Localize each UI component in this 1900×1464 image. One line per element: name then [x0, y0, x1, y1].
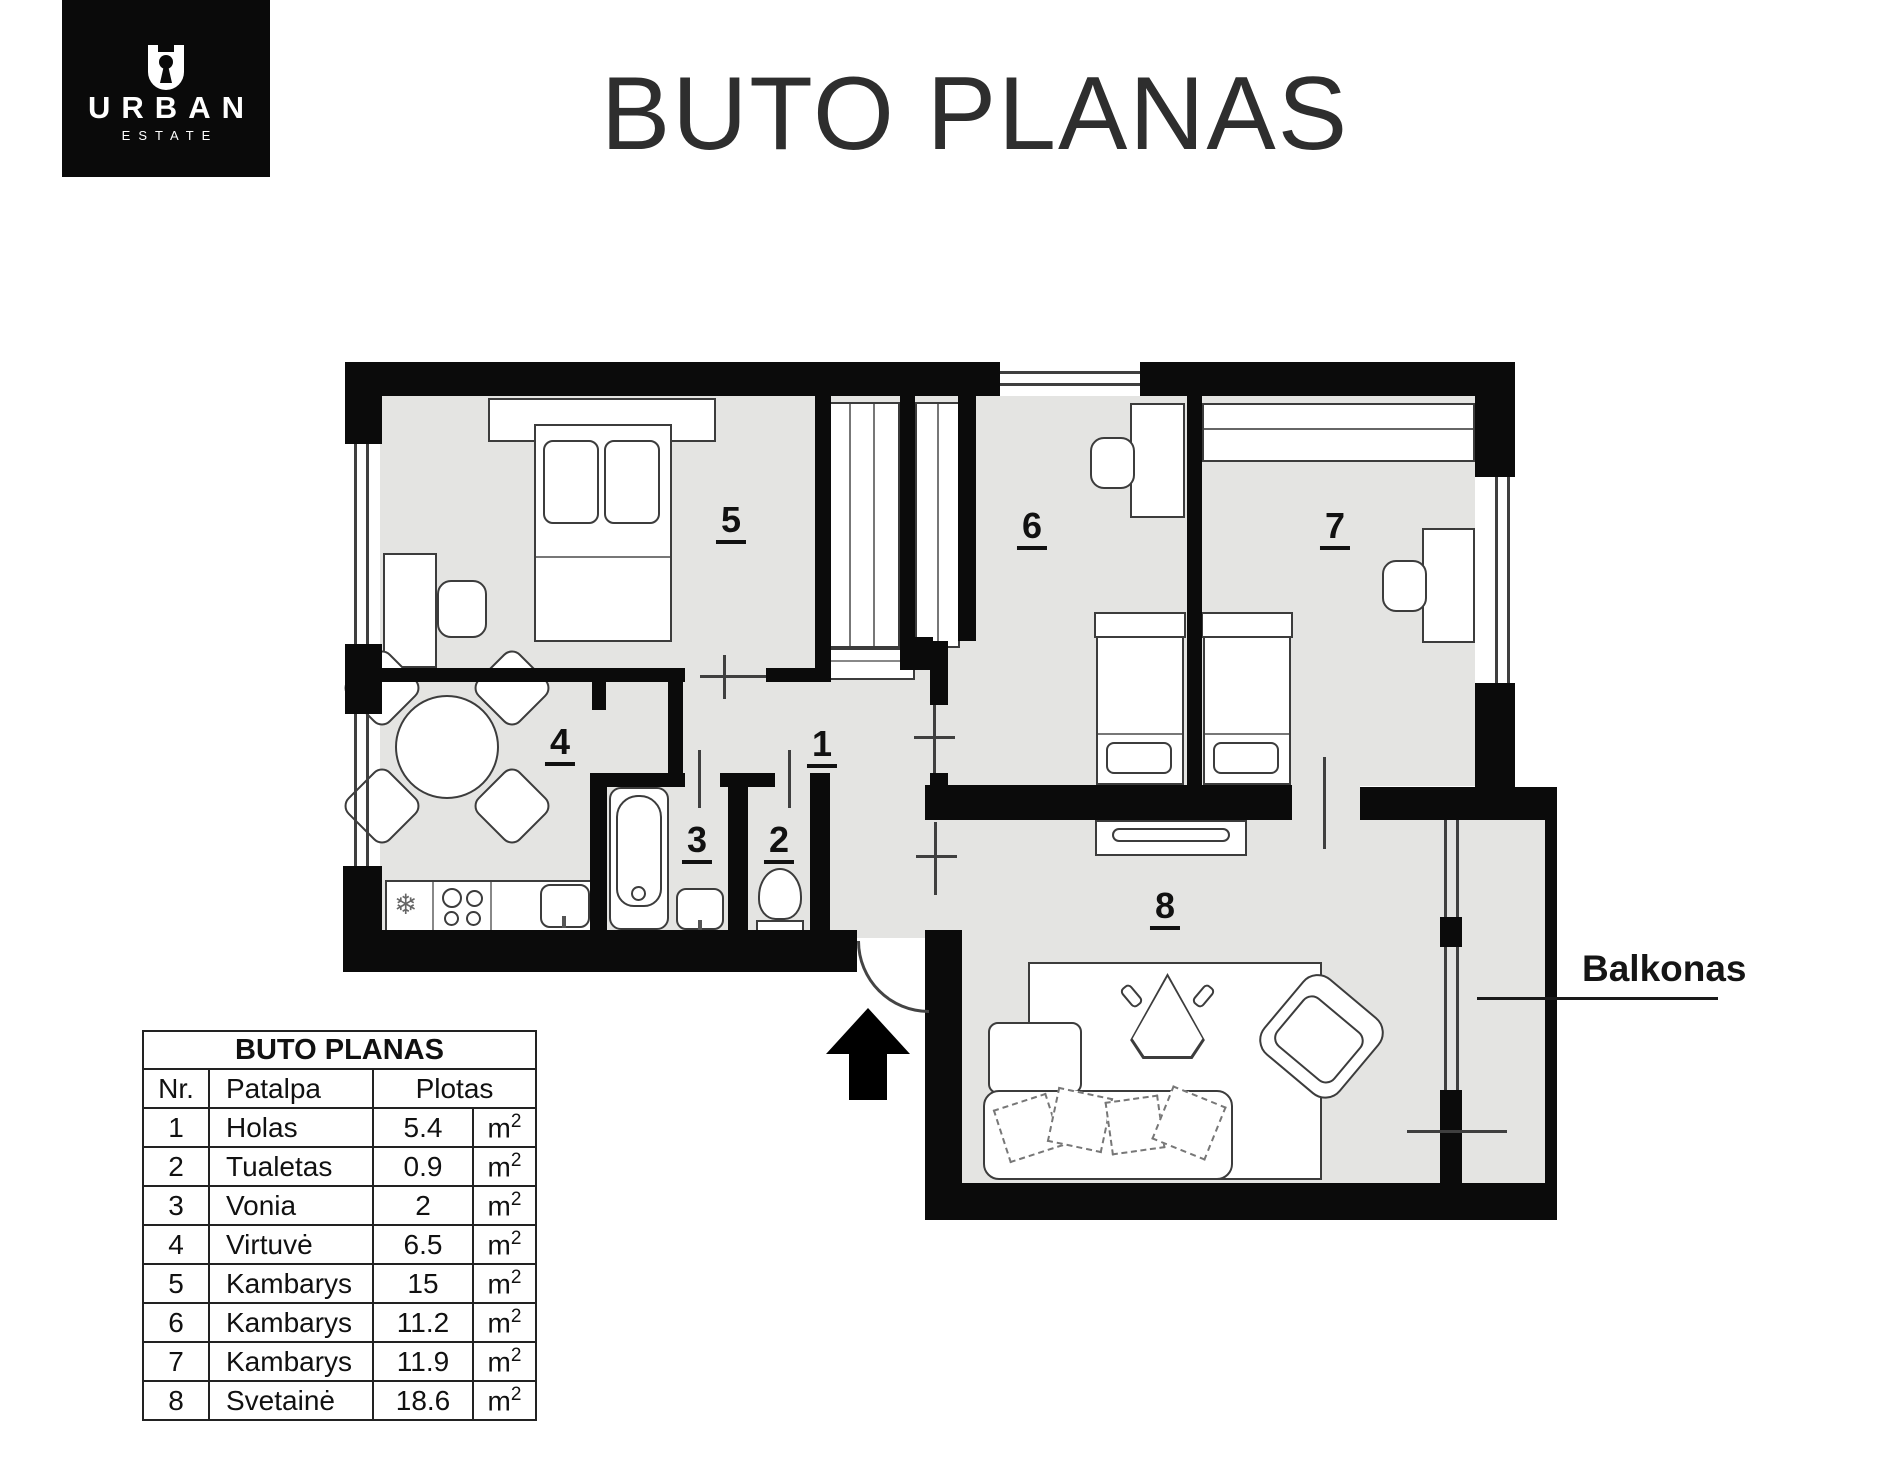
sofa-back-icon	[988, 1022, 1082, 1094]
cell-unit: m2	[473, 1186, 536, 1225]
unit-base: m	[488, 1112, 511, 1143]
unit-base: m	[488, 1346, 511, 1377]
office-chair-icon	[437, 580, 487, 638]
cell-name: Tualetas	[209, 1147, 373, 1186]
unit-sup: 2	[511, 1228, 522, 1249]
cell-nr: 3	[143, 1186, 209, 1225]
unit-base: m	[488, 1268, 511, 1299]
stove-burner-icon	[466, 890, 483, 907]
room-label-7: 7	[1320, 508, 1350, 550]
unit-base: m	[488, 1229, 511, 1260]
wall-segment	[925, 1183, 1557, 1220]
entrance-door-arc	[857, 941, 929, 1013]
cell-unit: m2	[473, 1108, 536, 1147]
cell-nr: 2	[143, 1147, 209, 1186]
window-line	[1507, 477, 1510, 683]
stove-burner-icon	[466, 911, 481, 926]
cell-unit: m2	[473, 1381, 536, 1420]
cell-value: 15	[373, 1264, 473, 1303]
counter-divider	[490, 882, 492, 930]
unit-sup: 2	[511, 1345, 522, 1366]
cell-name: Svetainė	[209, 1381, 373, 1420]
wall-segment	[766, 668, 815, 682]
wall-segment	[380, 668, 685, 682]
round-table-icon	[395, 695, 499, 799]
balcony-label: Balkonas	[1582, 948, 1747, 990]
table-row: 4 Virtuvė 6.5 m2	[143, 1225, 536, 1264]
stove-burner-icon	[444, 911, 459, 926]
keyhole-icon	[136, 42, 196, 92]
door-tick	[788, 750, 791, 808]
faucet-line	[562, 916, 566, 928]
cell-value: 5.4	[373, 1108, 473, 1147]
table-row: 3 Vonia 2 m2	[143, 1186, 536, 1225]
door-tick	[700, 675, 766, 678]
balcony-window-line	[1444, 820, 1447, 1090]
balcony-door-panel	[1440, 1090, 1462, 1183]
room-label-1: 1	[807, 726, 837, 768]
unit-sup: 2	[511, 1150, 522, 1171]
wall-segment	[590, 773, 607, 933]
wall-segment	[343, 930, 857, 972]
pillow-icon	[604, 440, 660, 524]
wardrobe-icon	[825, 402, 900, 648]
cell-name: Holas	[209, 1108, 373, 1147]
wall-segment	[668, 682, 683, 777]
window-line	[354, 444, 357, 644]
cell-nr: 5	[143, 1264, 209, 1303]
cell-value: 6.5	[373, 1225, 473, 1264]
table-row: 8 Svetainė 18.6 m2	[143, 1381, 536, 1420]
unit-base: m	[488, 1307, 511, 1338]
cell-name: Kambarys	[209, 1342, 373, 1381]
pillow-icon	[543, 440, 599, 524]
balcony-mullion	[1440, 917, 1462, 947]
cell-name: Vonia	[209, 1186, 373, 1225]
cell-nr: 6	[143, 1303, 209, 1342]
window-line	[1000, 371, 1140, 374]
room-label-8: 8	[1150, 888, 1180, 930]
cell-name: Kambarys	[209, 1264, 373, 1303]
logo-brand-text: URBAN	[62, 90, 270, 126]
tv-icon	[1112, 828, 1230, 842]
window	[1000, 362, 1140, 396]
entrance-arrow-icon	[826, 1008, 910, 1054]
office-chair-icon	[1090, 437, 1135, 489]
wall-segment	[1140, 362, 1515, 396]
wall-segment	[925, 785, 1292, 820]
wall-segment	[925, 930, 962, 1220]
wall-segment	[930, 641, 948, 705]
wardrobe-door-line	[937, 404, 939, 646]
office-chair-icon	[1382, 560, 1427, 612]
wardrobe-door-line	[873, 404, 875, 646]
page-title: BUTO PLANAS	[475, 55, 1475, 174]
blanket-line	[536, 556, 670, 558]
cell-nr: 7	[143, 1342, 209, 1381]
table-row: 5 Kambarys 15 m2	[143, 1264, 536, 1303]
wall-segment	[930, 773, 948, 787]
window-line	[366, 444, 369, 644]
table-row: 7 Kambarys 11.9 m2	[143, 1342, 536, 1381]
unit-base: m	[488, 1151, 511, 1182]
cell-unit: m2	[473, 1303, 536, 1342]
cell-unit: m2	[473, 1225, 536, 1264]
cell-unit: m2	[473, 1147, 536, 1186]
cell-nr: 4	[143, 1225, 209, 1264]
wall-segment	[1475, 683, 1515, 790]
wall-segment	[1545, 787, 1557, 1220]
unit-base: m	[488, 1190, 511, 1221]
cell-unit: m2	[473, 1342, 536, 1381]
pillow-icon	[1106, 742, 1172, 774]
wall-segment	[345, 362, 382, 444]
door-tick	[914, 736, 955, 739]
floor-plan-page: URBAN ESTATE BUTO PLANAS ❄	[0, 0, 1900, 1464]
cell-nr: 1	[143, 1108, 209, 1147]
wardrobe-door-line	[849, 404, 851, 646]
window-line	[354, 714, 357, 866]
counter-divider	[432, 882, 434, 930]
entrance-arrow-stem	[849, 1052, 887, 1100]
single-bed-foot-icon	[1094, 612, 1186, 638]
area-table: BUTO PLANAS Nr. Patalpa Plotas 1 Holas 5…	[142, 1030, 537, 1421]
room-label-5: 5	[716, 502, 746, 544]
door-line	[934, 822, 937, 895]
unit-sup: 2	[511, 1189, 522, 1210]
wall-segment	[592, 682, 606, 710]
wall-segment	[345, 362, 1000, 396]
cell-value: 0.9	[373, 1147, 473, 1186]
cell-name: Kambarys	[209, 1303, 373, 1342]
freezer-icon: ❄	[394, 888, 417, 921]
col-header-name: Patalpa	[209, 1069, 373, 1108]
door-line	[933, 705, 936, 773]
cell-value: 11.9	[373, 1342, 473, 1381]
wardrobe-icon	[1202, 403, 1475, 462]
toilet-icon	[758, 868, 802, 920]
window-line	[366, 714, 369, 866]
wall-segment	[900, 637, 933, 670]
logo-sub-text: ESTATE	[62, 128, 270, 143]
balcony-window-line	[1456, 820, 1459, 1090]
room-label-2: 2	[764, 822, 794, 864]
cell-value: 18.6	[373, 1381, 473, 1420]
door-tick	[1323, 757, 1326, 849]
unit-sup: 2	[511, 1384, 522, 1405]
wall-segment	[345, 644, 382, 714]
window-line	[1495, 477, 1498, 683]
col-header-nr: Nr.	[143, 1069, 209, 1108]
table-row: 6 Kambarys 11.2 m2	[143, 1303, 536, 1342]
wall-segment	[1187, 396, 1202, 786]
unit-base: m	[488, 1385, 511, 1416]
wall-segment	[1360, 787, 1557, 820]
wall-segment	[720, 773, 775, 787]
desk-icon	[1130, 403, 1185, 518]
unit-sup: 2	[511, 1267, 522, 1288]
wall-segment	[900, 396, 915, 652]
room-label-3: 3	[682, 822, 712, 864]
room-label-6: 6	[1017, 508, 1047, 550]
balcony-leader-line	[1477, 997, 1718, 1000]
cell-unit: m2	[473, 1264, 536, 1303]
blanket-line	[1205, 733, 1289, 735]
cell-name: Virtuvė	[209, 1225, 373, 1264]
pillow-icon	[1213, 742, 1279, 774]
area-table-title: BUTO PLANAS	[143, 1031, 536, 1069]
desk-icon	[383, 553, 437, 668]
window-line	[1000, 383, 1140, 386]
col-header-area: Plotas	[373, 1069, 536, 1108]
table-row: 2 Tualetas 0.9 m2	[143, 1147, 536, 1186]
wall-segment	[1475, 362, 1515, 477]
faucet-line	[698, 920, 702, 930]
logo: URBAN ESTATE	[62, 0, 270, 177]
wall-segment	[815, 396, 831, 682]
wall-segment	[958, 396, 976, 641]
door-tick	[916, 855, 957, 858]
door-tick	[698, 750, 701, 808]
room-label-4: 4	[545, 724, 575, 766]
blanket-line	[1098, 733, 1182, 735]
cell-value: 11.2	[373, 1303, 473, 1342]
wardrobe-rail-line	[1204, 428, 1473, 430]
balcony-tick	[1407, 1130, 1507, 1133]
cell-nr: 8	[143, 1381, 209, 1420]
stove-burner-icon	[442, 888, 462, 908]
single-bed-foot-icon	[1201, 612, 1293, 638]
cushion-icon	[1047, 1087, 1113, 1153]
cell-value: 2	[373, 1186, 473, 1225]
drain-icon	[631, 886, 646, 901]
wall-segment	[810, 773, 830, 933]
wall-segment	[728, 787, 748, 933]
table-row: 1 Holas 5.4 m2	[143, 1108, 536, 1147]
unit-sup: 2	[511, 1111, 522, 1132]
unit-sup: 2	[511, 1306, 522, 1327]
door-tick	[723, 655, 726, 699]
desk-icon	[1422, 528, 1475, 643]
